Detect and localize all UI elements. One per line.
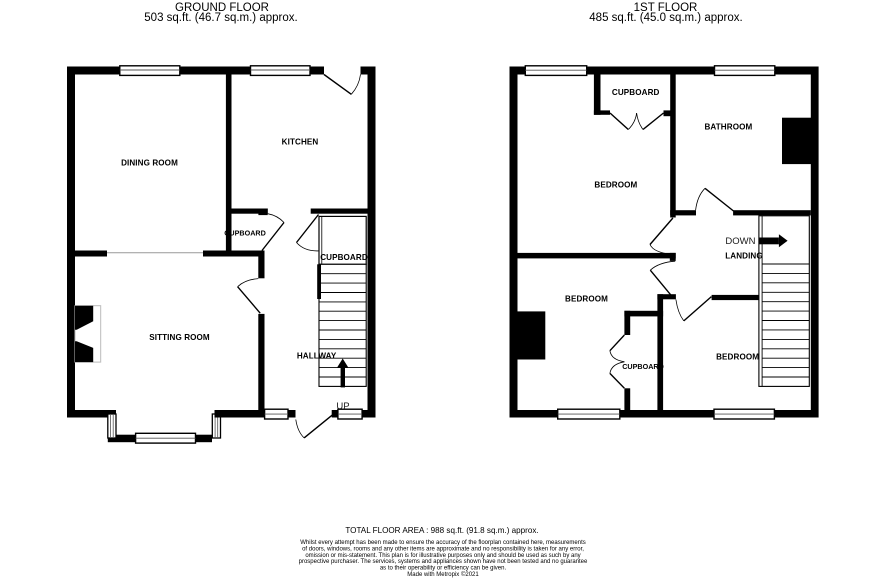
svg-text:omission or mis-statement. Thi: omission or mis-statement. This plan is … bbox=[305, 553, 580, 559]
svg-text:DOWN: DOWN bbox=[725, 236, 755, 247]
svg-text:SITTING ROOM: SITTING ROOM bbox=[149, 333, 210, 342]
svg-text:BEDROOM: BEDROOM bbox=[565, 294, 608, 303]
svg-text:CUPBOARD: CUPBOARD bbox=[224, 228, 266, 237]
svg-text:TOTAL FLOOR AREA : 988 sq.ft.: TOTAL FLOOR AREA : 988 sq.ft. (91.8 sq.m… bbox=[345, 526, 538, 535]
svg-text:HALLWAY: HALLWAY bbox=[297, 352, 337, 361]
svg-text:DINING ROOM: DINING ROOM bbox=[121, 159, 178, 168]
svg-text:BEDROOM: BEDROOM bbox=[594, 181, 637, 190]
svg-text:CUPBOARD: CUPBOARD bbox=[612, 88, 660, 97]
svg-text:BEDROOM: BEDROOM bbox=[716, 353, 759, 362]
svg-text:UP: UP bbox=[336, 401, 349, 412]
svg-text:503 sq.ft. (46.7 sq.m.) approx: 503 sq.ft. (46.7 sq.m.) approx. bbox=[144, 12, 297, 24]
svg-text:Made with Metropix ©2021: Made with Metropix ©2021 bbox=[407, 571, 479, 578]
svg-text:of doors, windows, rooms and a: of doors, windows, rooms and any other i… bbox=[302, 546, 584, 552]
svg-text:as to their operability or eff: as to their operability or efficiency ca… bbox=[380, 566, 507, 572]
svg-text:KITCHEN: KITCHEN bbox=[282, 137, 319, 146]
svg-text:CUPBOARD: CUPBOARD bbox=[320, 253, 368, 262]
svg-text:485 sq.ft. (45.0 sq.m.) approx: 485 sq.ft. (45.0 sq.m.) approx. bbox=[589, 12, 742, 24]
svg-text:Whilst every attempt has been: Whilst every attempt has been made to en… bbox=[300, 540, 586, 546]
svg-text:CUPBOARD: CUPBOARD bbox=[622, 362, 664, 371]
svg-text:BATHROOM: BATHROOM bbox=[704, 123, 752, 132]
svg-text:prospective purchaser. The ser: prospective purchaser. The services, sys… bbox=[299, 559, 588, 565]
svg-text:LANDING: LANDING bbox=[725, 252, 763, 261]
